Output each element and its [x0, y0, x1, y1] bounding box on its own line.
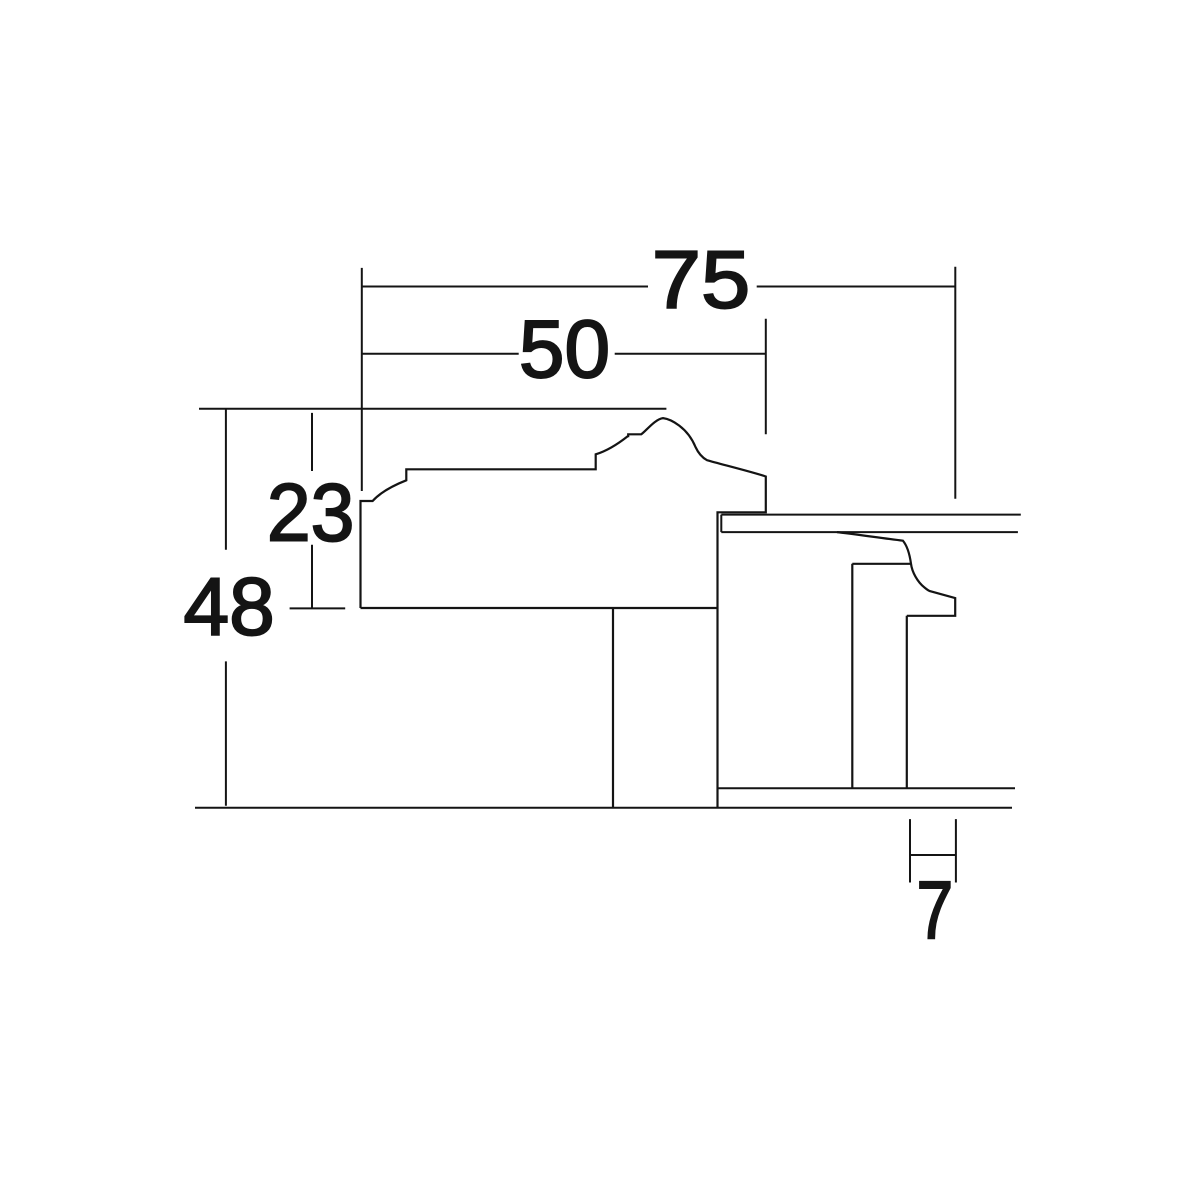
- svg-text:23: 23: [267, 467, 355, 559]
- svg-text:50: 50: [519, 304, 610, 395]
- svg-text:48: 48: [183, 562, 274, 653]
- svg-text:7: 7: [917, 864, 954, 955]
- svg-text:75: 75: [652, 234, 750, 325]
